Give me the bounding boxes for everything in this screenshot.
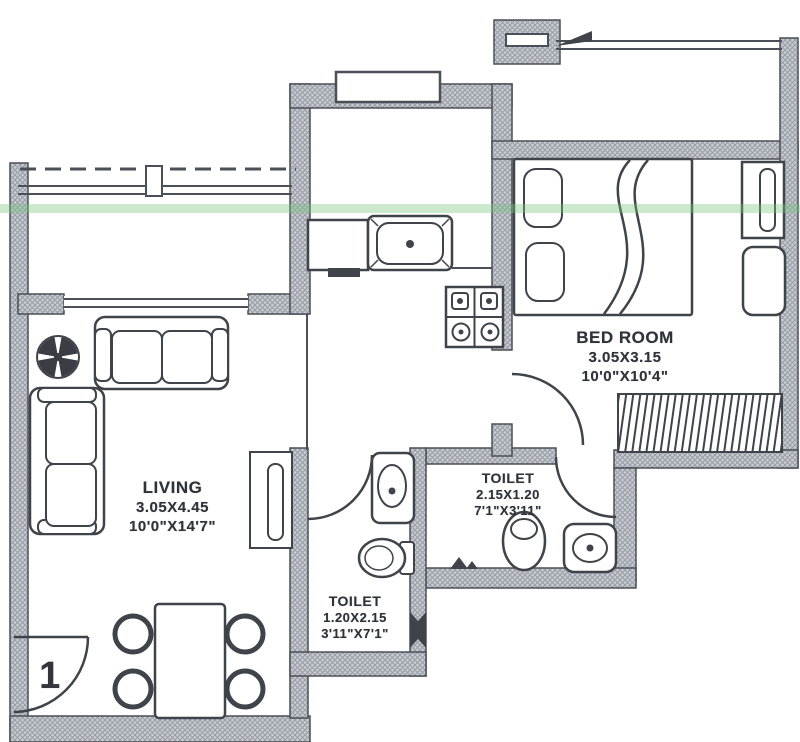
room-dim-metric: 1.20X2.15 (300, 610, 410, 626)
wc-icon (359, 539, 414, 577)
wall-bedroom-top (492, 141, 798, 159)
washbasin-icon (372, 453, 414, 523)
green-scan-line (0, 204, 800, 213)
room-name: TOILET (448, 470, 568, 487)
wall-bedroom-door-stub (492, 424, 512, 456)
wall-living-bottom (10, 716, 310, 742)
floor-plan: LIVING 3.05X4.45 10'0"X14'7" BED ROOM 3.… (0, 0, 800, 742)
living-room-label: LIVING 3.05X4.45 10'0"X14'7" (105, 477, 240, 536)
room-dim-imperial: 10'0"X10'4" (540, 367, 710, 386)
tv-unit-icon (250, 452, 292, 548)
wall-left-outer (10, 163, 28, 742)
toilet-large-label: TOILET 2.15X1.20 7'1"X3'11" (448, 470, 568, 519)
room-name: TOILET (300, 593, 410, 610)
sofa-top-icon (95, 317, 228, 389)
kitchen-window (336, 72, 440, 102)
toilet1-door-arc (308, 455, 372, 519)
sofa-left-icon (30, 388, 104, 534)
wall-terrace-stub-left (18, 294, 64, 314)
bedside-unit-icon (742, 162, 785, 315)
unit-number: 1 (28, 655, 72, 698)
wall-kitchen-left (290, 84, 310, 314)
wall-toilet1-bottom (290, 652, 426, 676)
wall-toilet2-right (614, 468, 636, 582)
kitchen-cabinet-icon (308, 220, 368, 277)
room-dim-imperial: 3'11"X7'1" (300, 626, 410, 642)
room-name: LIVING (105, 477, 240, 498)
room-dim-imperial: 7'1"X3'11" (448, 503, 568, 519)
wall-toilet2-top (426, 448, 556, 464)
ceiling-fan-icon (37, 336, 79, 378)
dining-set-icon (115, 604, 263, 718)
room-name: BED ROOM (540, 327, 710, 348)
room-dim-imperial: 10'0"X14'7" (105, 517, 240, 536)
shower-icon (450, 557, 478, 569)
bed-icon (514, 159, 692, 315)
room-dim-metric: 3.05X4.45 (105, 498, 240, 517)
toilet-small-label: TOILET 1.20X2.15 3'11"X7'1" (300, 593, 410, 642)
terrace-railing-post (146, 166, 162, 196)
kitchen-sink-icon (368, 216, 452, 270)
terrace2-vent-slot (506, 34, 548, 46)
room-dim-metric: 2.15X1.20 (448, 487, 568, 503)
bedroom-label: BED ROOM 3.05X3.15 10'0"X10'4" (540, 327, 710, 386)
terrace2-railing-flag (556, 31, 592, 46)
room-dim-metric: 3.05X3.15 (540, 348, 710, 367)
wardrobe-icon (618, 394, 782, 452)
wc-icon (503, 512, 545, 570)
washbasin-icon (564, 524, 616, 572)
dining-table-icon (155, 604, 225, 718)
stove-icon (446, 287, 503, 347)
